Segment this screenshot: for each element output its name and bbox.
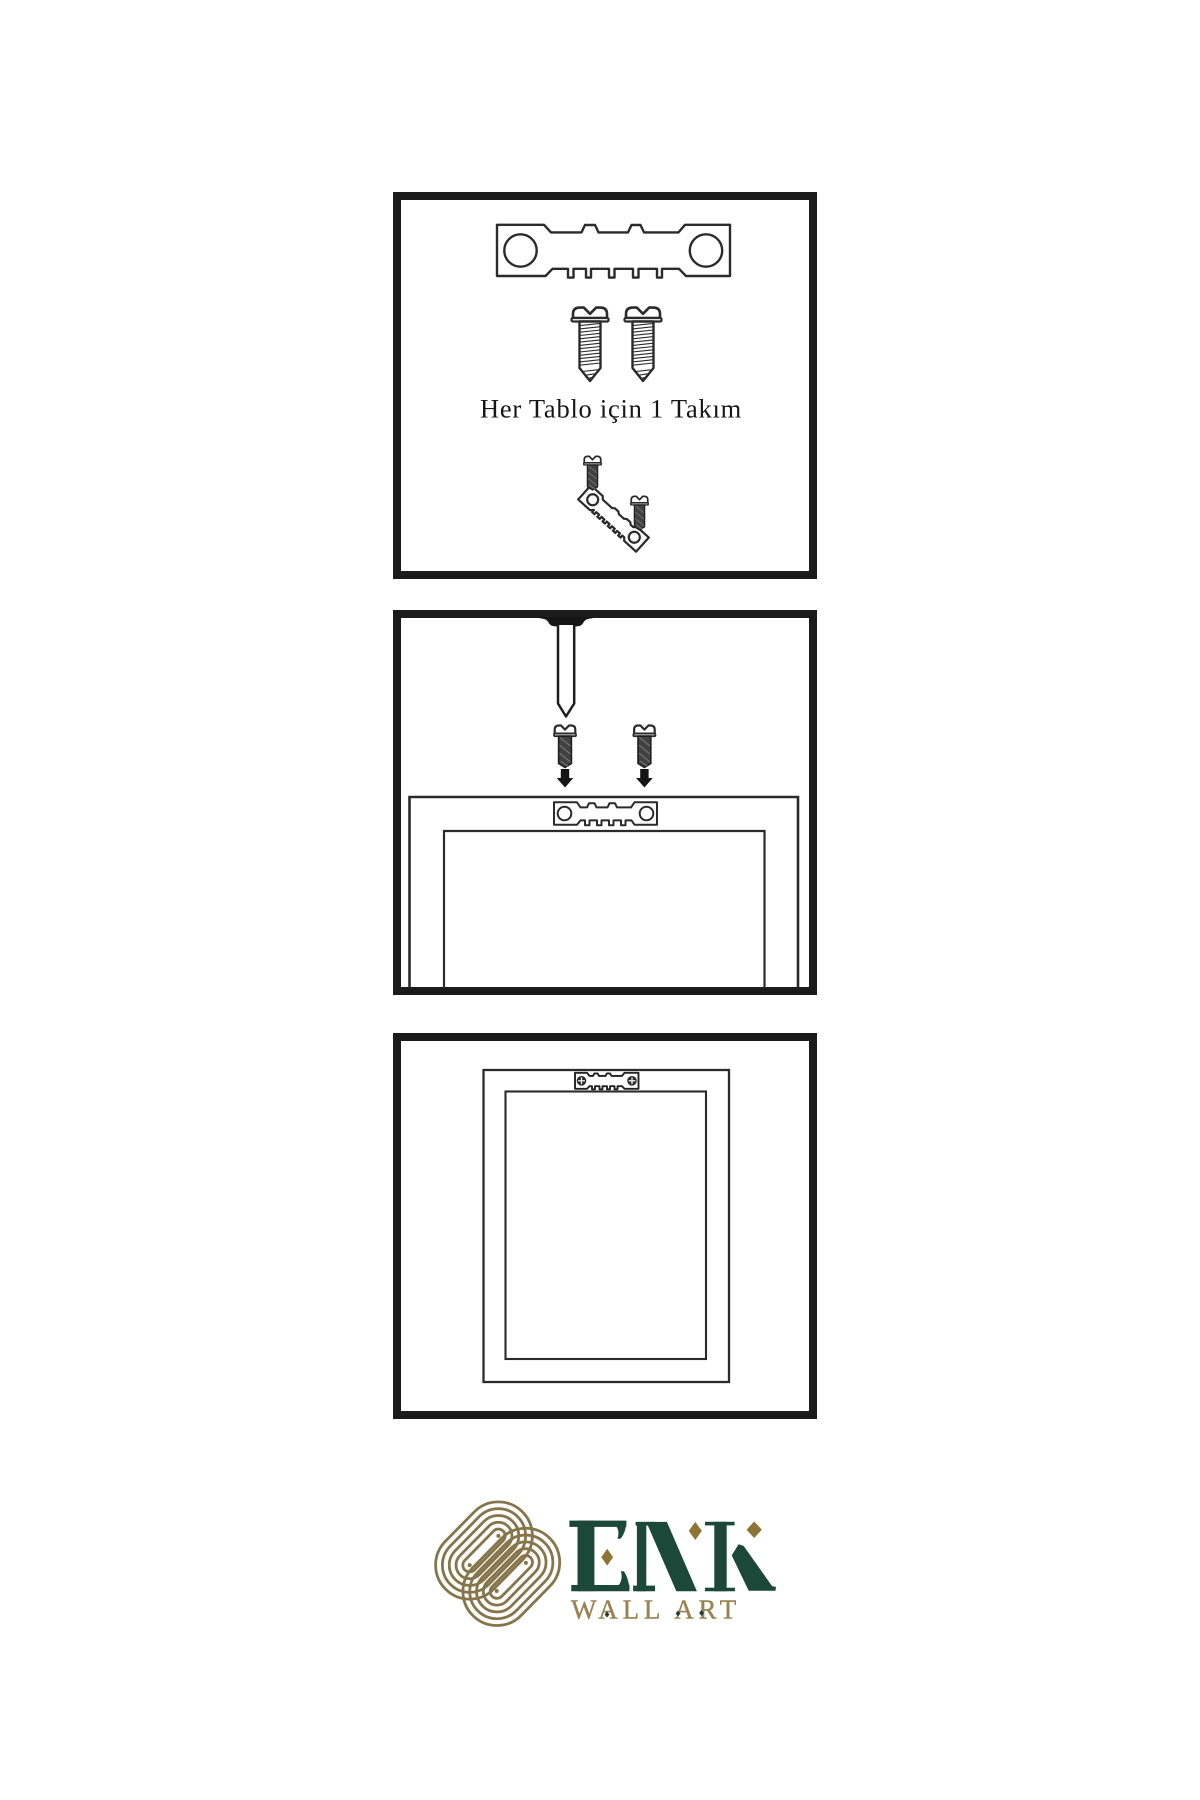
svg-text:WALL ART: WALL ART <box>571 1595 741 1625</box>
svg-text:Her Tablo için 1 Takım: Her Tablo için 1 Takım <box>480 394 742 424</box>
